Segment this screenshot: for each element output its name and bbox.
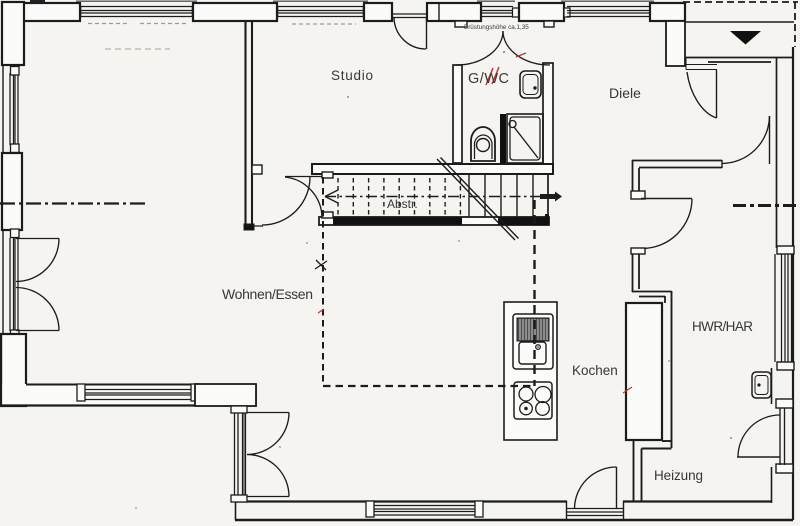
svg-text:Studio: Studio [331,68,373,83]
svg-text:Brüstungshöhe ca.1,35: Brüstungshöhe ca.1,35 [464,24,529,31]
svg-text:Heizung: Heizung [654,468,703,483]
svg-text:HWR/HAR: HWR/HAR [692,319,753,334]
svg-text:Kochen: Kochen [572,363,618,378]
svg-text:Diele: Diele [609,85,641,101]
svg-text:Wohnen/Essen: Wohnen/Essen [222,286,313,302]
svg-text:G/WC: G/WC [468,71,509,87]
svg-text:Abstr.: Abstr. [387,197,418,211]
